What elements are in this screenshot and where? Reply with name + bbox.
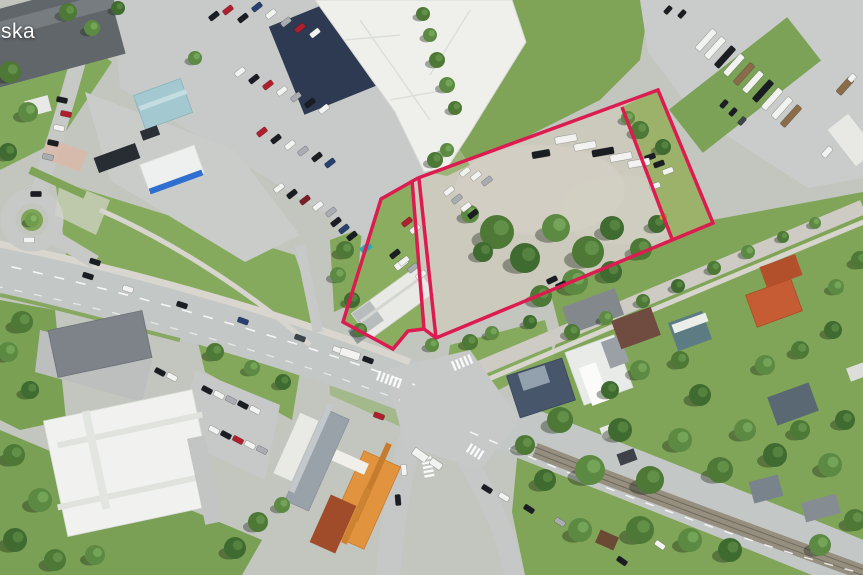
map-street-label: ska <box>1 20 35 44</box>
aerial-imagery <box>0 0 863 575</box>
satellite-map-view: ska <box>0 0 863 575</box>
